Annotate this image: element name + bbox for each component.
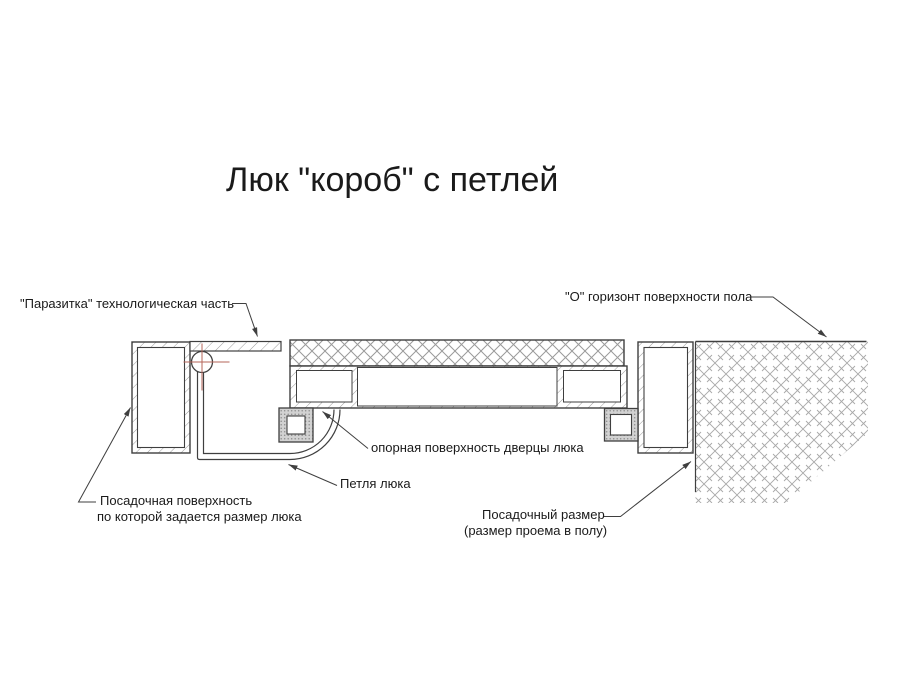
frame-profile-right <box>638 342 693 453</box>
label-hinge: Петля люка <box>340 477 411 491</box>
label-seating-surface-line1: Посадочная поверхность <box>100 494 252 508</box>
hatch-section-drawing <box>0 0 900 700</box>
door-middle-cavity <box>358 368 558 407</box>
label-seating-size-line2: (размер проема в полу) <box>464 524 607 538</box>
support-block-left <box>279 408 313 442</box>
leader-parasitka <box>232 304 258 337</box>
label-parasitka: "Паразитка" технологическая часть <box>20 297 234 311</box>
leader-floor-horizon <box>751 297 827 337</box>
floor-ground-hatch <box>696 342 869 504</box>
frame-profile-left <box>132 342 190 453</box>
drawing-title: Люк "короб" с петлей <box>226 161 558 199</box>
door-left-profile-cavity <box>297 371 353 403</box>
door-right-profile-cavity <box>564 371 621 403</box>
label-seating-surface-line2: по которой задается размер люка <box>97 510 302 524</box>
leader-seating-size <box>604 462 691 517</box>
leader-hinge <box>289 465 338 486</box>
door-pan <box>290 366 627 408</box>
support-block-right <box>605 409 639 442</box>
parasitka-strip <box>190 342 281 352</box>
label-seating-size-line1: Посадочный размер <box>482 508 605 522</box>
drawing-page: Люк "короб" с петлей "Паразитка" техноло… <box>0 0 900 700</box>
label-floor-horizon: "О" горизонт поверхности пола <box>565 290 752 304</box>
door-cover-slab <box>290 340 624 366</box>
leader-seating-surface <box>79 408 131 503</box>
label-door-support: опорная поверхность дверцы люка <box>371 441 584 455</box>
